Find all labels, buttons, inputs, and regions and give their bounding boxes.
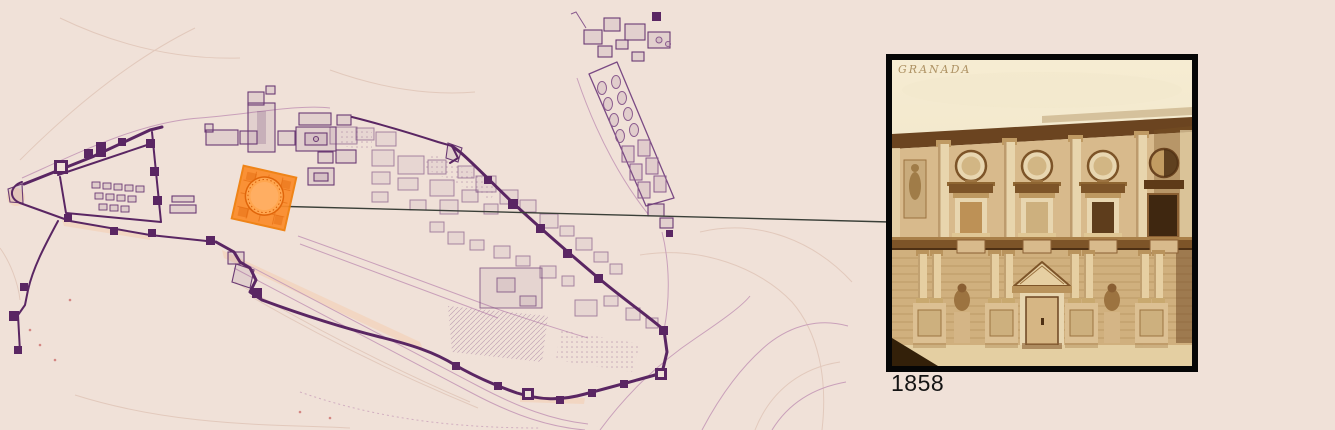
photo-caption: 1858 [891,370,944,396]
historic-photo[interactable]: GRANADA [886,54,1198,372]
map-specks [29,299,332,420]
nasrid-palaces [8,86,462,288]
palace-facade-photograph: GRANADA [892,60,1192,366]
connector-line [268,206,890,222]
convent-san-francisco [480,268,542,308]
alcazaba-barracks [92,182,144,212]
facade-upper-story [892,126,1192,237]
scene: GRANADA [0,0,1335,430]
alhambra-site-plan [0,0,890,430]
facade-lower-story [892,240,1192,345]
highlight-palace-square[interactable] [232,166,297,231]
photo-inscription: GRANADA [898,63,971,76]
terrain-contours [0,18,852,430]
generalife [571,12,673,228]
